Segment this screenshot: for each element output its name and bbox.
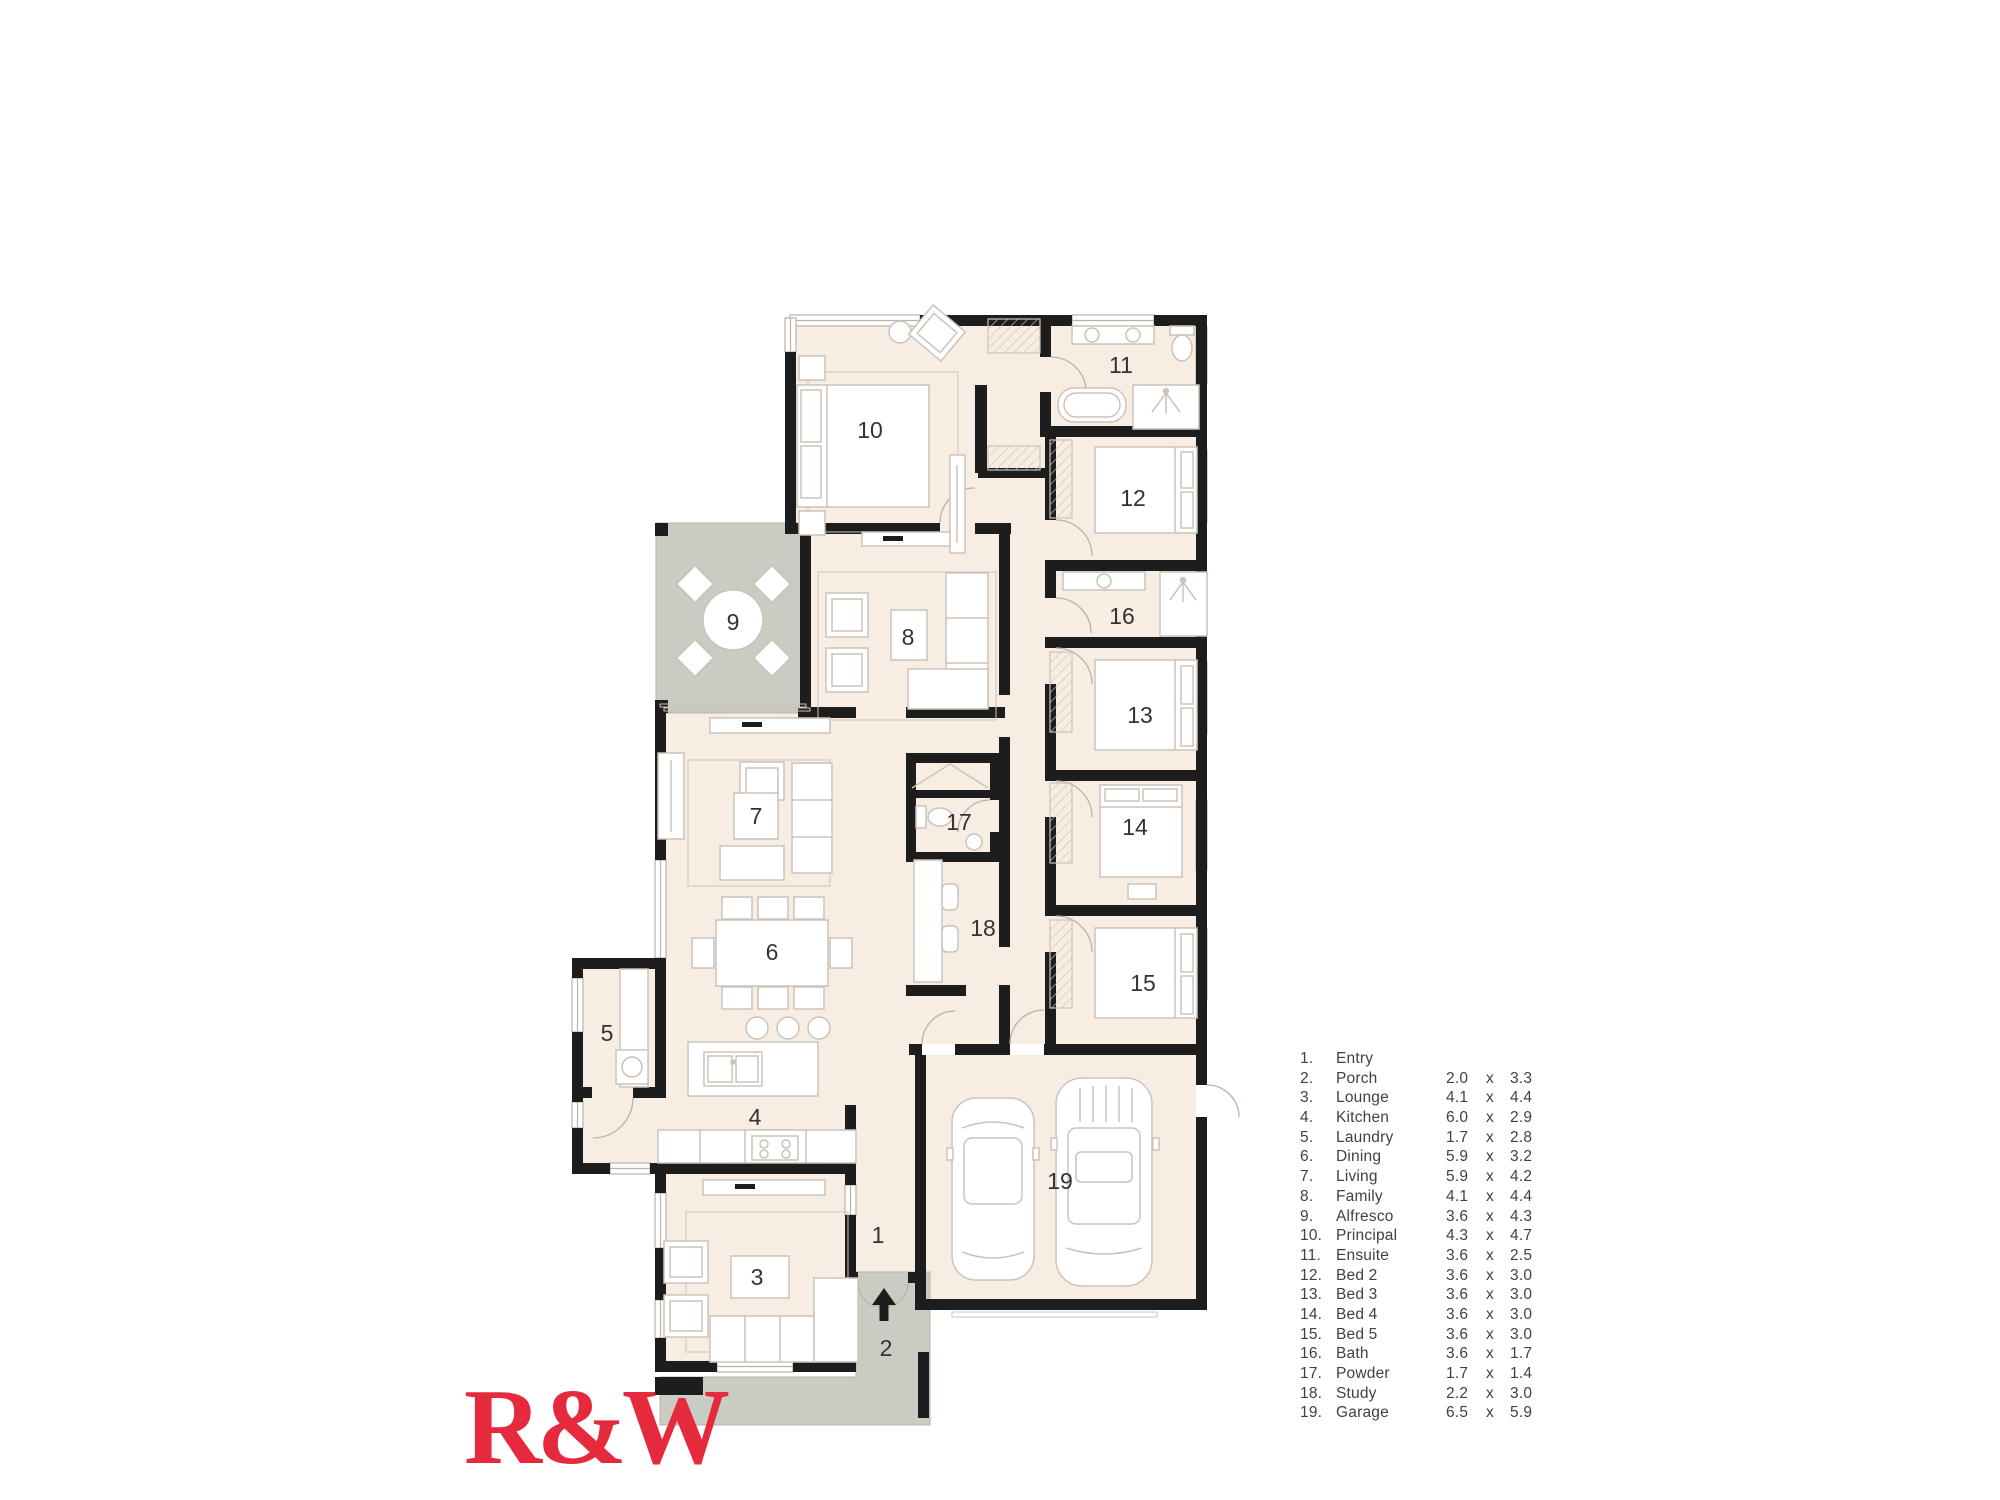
legend-room-name: Powder <box>1336 1364 1446 1384</box>
legend-room-name: Alfresco <box>1336 1207 1446 1227</box>
legend-dim-width: 3.6 <box>1446 1305 1486 1325</box>
legend-room-name: Study <box>1336 1384 1446 1404</box>
legend-room-number: 11. <box>1300 1246 1336 1266</box>
legend-room-name: Lounge <box>1336 1088 1446 1108</box>
legend-room-number: 17. <box>1300 1364 1336 1384</box>
legend-row: 10.Principal4.3x4.7 <box>1300 1226 1570 1246</box>
agency-logo: R&W <box>464 1378 724 1478</box>
legend-room-name: Ensuite <box>1336 1246 1446 1266</box>
legend-dim-width: 4.1 <box>1446 1088 1486 1108</box>
legend-dim-height: 3.3 <box>1510 1069 1550 1089</box>
legend-row: 7.Living5.9x4.2 <box>1300 1167 1570 1187</box>
legend-dim-height: 2.5 <box>1510 1246 1550 1266</box>
legend-dim-height: 4.4 <box>1510 1088 1550 1108</box>
legend-dim-width: 5.9 <box>1446 1147 1486 1167</box>
legend-room-number: 18. <box>1300 1384 1336 1404</box>
legend-dim-separator: x <box>1486 1147 1510 1167</box>
room-number-label: 10 <box>857 417 883 443</box>
room-number-label: 12 <box>1120 485 1146 511</box>
legend-room-number: 14. <box>1300 1305 1336 1325</box>
legend: 1.Entry2.Porch2.0x3.33.Lounge4.1x4.44.Ki… <box>1300 1049 1570 1423</box>
room-number-label: 5 <box>601 1020 614 1046</box>
legend-dim-separator: x <box>1486 1384 1510 1404</box>
room-number-label: 16 <box>1109 603 1135 629</box>
legend-row: 13.Bed 33.6x3.0 <box>1300 1285 1570 1305</box>
legend-dim-width: 1.7 <box>1446 1364 1486 1384</box>
legend-row: 6.Dining5.9x3.2 <box>1300 1147 1570 1167</box>
legend-dim-separator: x <box>1486 1207 1510 1227</box>
legend-dim-separator: x <box>1486 1088 1510 1108</box>
legend-room-name: Kitchen <box>1336 1108 1446 1128</box>
legend-row: 18.Study2.2x3.0 <box>1300 1384 1570 1404</box>
room-number-label: 2 <box>880 1335 893 1361</box>
legend-dim-height <box>1510 1049 1550 1069</box>
legend-dim-width <box>1446 1049 1486 1069</box>
legend-room-number: 7. <box>1300 1167 1336 1187</box>
legend-dim-separator: x <box>1486 1403 1510 1423</box>
floor-plan: 12345678910111213141516171819 <box>0 0 2000 1500</box>
legend-row: 19.Garage6.5x5.9 <box>1300 1403 1570 1423</box>
legend-row: 2.Porch2.0x3.3 <box>1300 1069 1570 1089</box>
room-number-label: 6 <box>766 939 779 965</box>
legend-dim-separator: x <box>1486 1187 1510 1207</box>
legend-dim-height: 1.7 <box>1510 1344 1550 1364</box>
legend-dim-separator: x <box>1486 1364 1510 1384</box>
legend-room-name: Bed 2 <box>1336 1266 1446 1286</box>
legend-dim-height: 1.4 <box>1510 1364 1550 1384</box>
legend-room-number: 3. <box>1300 1088 1336 1108</box>
legend-dim-separator <box>1486 1049 1510 1069</box>
legend-row: 8.Family4.1x4.4 <box>1300 1187 1570 1207</box>
legend-dim-width: 2.0 <box>1446 1069 1486 1089</box>
legend-room-number: 10. <box>1300 1226 1336 1246</box>
legend-dim-separator: x <box>1486 1108 1510 1128</box>
legend-room-name: Dining <box>1336 1147 1446 1167</box>
legend-room-number: 19. <box>1300 1403 1336 1423</box>
legend-room-number: 12. <box>1300 1266 1336 1286</box>
legend-dim-separator: x <box>1486 1128 1510 1148</box>
legend-row: 4.Kitchen6.0x2.9 <box>1300 1108 1570 1128</box>
legend-row: 14.Bed 43.6x3.0 <box>1300 1305 1570 1325</box>
legend-row: 15.Bed 53.6x3.0 <box>1300 1325 1570 1345</box>
legend-dim-width: 5.9 <box>1446 1167 1486 1187</box>
legend-room-number: 4. <box>1300 1108 1336 1128</box>
legend-dim-separator: x <box>1486 1167 1510 1187</box>
legend-room-number: 2. <box>1300 1069 1336 1089</box>
room-number-label: 13 <box>1127 702 1153 728</box>
room-number-label: 9 <box>727 609 740 635</box>
legend-dim-width: 3.6 <box>1446 1207 1486 1227</box>
legend-room-name: Family <box>1336 1187 1446 1207</box>
legend-row: 1.Entry <box>1300 1049 1570 1069</box>
legend-room-number: 1. <box>1300 1049 1336 1069</box>
room-number-label: 4 <box>749 1104 762 1130</box>
room-number-label: 3 <box>751 1264 764 1290</box>
legend-row: 9.Alfresco3.6x4.3 <box>1300 1207 1570 1227</box>
legend-dim-width: 6.0 <box>1446 1108 1486 1128</box>
legend-dim-width: 3.6 <box>1446 1285 1486 1305</box>
legend-row: 16.Bath3.6x1.7 <box>1300 1344 1570 1364</box>
bed5-furniture <box>1050 920 1197 1018</box>
legend-room-name: Bed 4 <box>1336 1305 1446 1325</box>
legend-dim-separator: x <box>1486 1305 1510 1325</box>
legend-room-number: 16. <box>1300 1344 1336 1364</box>
legend-room-number: 5. <box>1300 1128 1336 1148</box>
room-number-label: 1 <box>872 1222 885 1248</box>
legend-dim-width: 3.6 <box>1446 1325 1486 1345</box>
legend-dim-width: 3.6 <box>1446 1344 1486 1364</box>
legend-room-name: Entry <box>1336 1049 1446 1069</box>
legend-dim-height: 4.3 <box>1510 1207 1550 1227</box>
legend-dim-height: 4.2 <box>1510 1167 1550 1187</box>
legend-room-name: Laundry <box>1336 1128 1446 1148</box>
legend-dim-width: 3.6 <box>1446 1246 1486 1266</box>
legend-dim-separator: x <box>1486 1266 1510 1286</box>
legend-room-number: 9. <box>1300 1207 1336 1227</box>
floor-plan-svg: 12345678910111213141516171819 <box>0 0 2000 1500</box>
legend-dim-height: 2.8 <box>1510 1128 1550 1148</box>
legend-room-number: 15. <box>1300 1325 1336 1345</box>
legend-room-name: Bath <box>1336 1344 1446 1364</box>
legend-room-number: 6. <box>1300 1147 1336 1167</box>
legend-dim-separator: x <box>1486 1069 1510 1089</box>
legend-dim-height: 4.7 <box>1510 1226 1550 1246</box>
legend-row: 17.Powder1.7x1.4 <box>1300 1364 1570 1384</box>
room-number-label: 17 <box>946 809 972 835</box>
legend-dim-width: 2.2 <box>1446 1384 1486 1404</box>
legend-dim-height: 5.9 <box>1510 1403 1550 1423</box>
legend-room-name: Bed 5 <box>1336 1325 1446 1345</box>
legend-room-name: Principal <box>1336 1226 1446 1246</box>
legend-row: 11.Ensuite3.6x2.5 <box>1300 1246 1570 1266</box>
legend-dim-width: 4.1 <box>1446 1187 1486 1207</box>
legend-dim-separator: x <box>1486 1285 1510 1305</box>
legend-dim-height: 3.0 <box>1510 1285 1550 1305</box>
legend-row: 5.Laundry1.7x2.8 <box>1300 1128 1570 1148</box>
legend-row: 3.Lounge4.1x4.4 <box>1300 1088 1570 1108</box>
legend-room-number: 13. <box>1300 1285 1336 1305</box>
legend-dim-separator: x <box>1486 1344 1510 1364</box>
laundry-fixtures <box>616 969 648 1087</box>
legend-dim-separator: x <box>1486 1325 1510 1345</box>
legend-dim-height: 3.0 <box>1510 1325 1550 1345</box>
room-number-label: 19 <box>1047 1168 1073 1194</box>
legend-dim-width: 1.7 <box>1446 1128 1486 1148</box>
legend-room-name: Bed 3 <box>1336 1285 1446 1305</box>
room-number-label: 8 <box>902 624 915 650</box>
room-number-label: 7 <box>750 803 763 829</box>
legend-dim-height: 3.0 <box>1510 1305 1550 1325</box>
legend-room-name: Porch <box>1336 1069 1446 1089</box>
legend-dim-height: 2.9 <box>1510 1108 1550 1128</box>
legend-dim-width: 4.3 <box>1446 1226 1486 1246</box>
legend-row: 12.Bed 23.6x3.0 <box>1300 1266 1570 1286</box>
legend-dim-width: 3.6 <box>1446 1266 1486 1286</box>
legend-dim-height: 3.2 <box>1510 1147 1550 1167</box>
room-number-label: 14 <box>1122 814 1148 840</box>
legend-dim-separator: x <box>1486 1226 1510 1246</box>
legend-room-number: 8. <box>1300 1187 1336 1207</box>
legend-dim-height: 3.0 <box>1510 1384 1550 1404</box>
legend-dim-height: 3.0 <box>1510 1266 1550 1286</box>
legend-room-name: Living <box>1336 1167 1446 1187</box>
room-number-label: 15 <box>1130 970 1156 996</box>
legend-dim-width: 6.5 <box>1446 1403 1486 1423</box>
room-number-label: 11 <box>1109 352 1133 378</box>
room-number-label: 18 <box>970 915 996 941</box>
legend-room-name: Garage <box>1336 1403 1446 1423</box>
legend-dim-separator: x <box>1486 1246 1510 1266</box>
legend-dim-height: 4.4 <box>1510 1187 1550 1207</box>
